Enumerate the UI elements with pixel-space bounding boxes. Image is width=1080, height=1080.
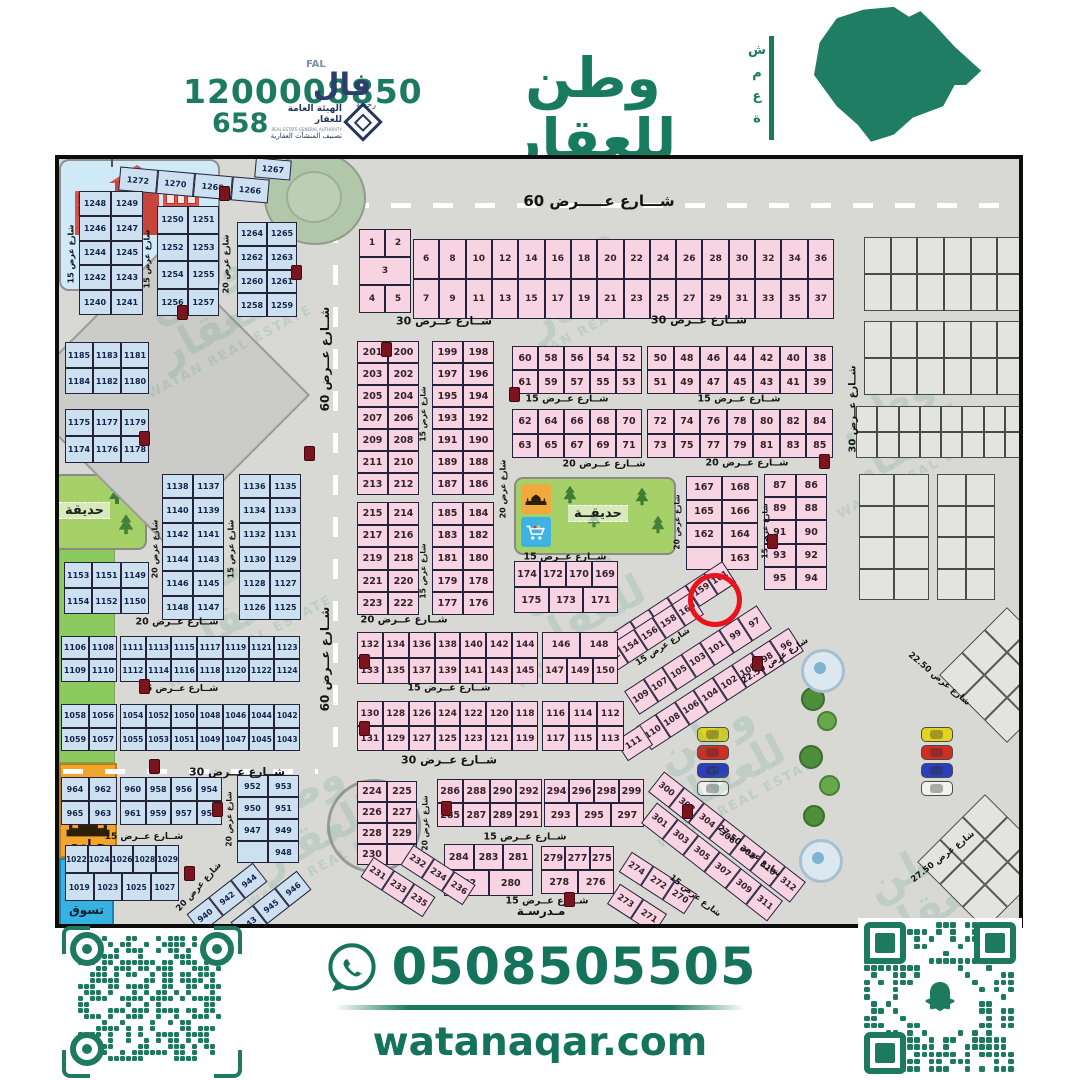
plot-cell-unnumbered [1005,406,1023,432]
plot-185: 185 [432,502,463,525]
plot-cell-unnumbered [962,432,983,458]
plot-299: 299 [619,779,644,803]
plot-cell-unnumbered [997,321,1023,358]
plot-1045: 1045 [249,728,275,752]
plot-178: 178 [463,570,494,593]
plots-layer: وطن للعقارWATAN REAL ESTATEوطن للعقارWAT… [59,159,1019,924]
plot-961: 961 [120,801,146,825]
plot-1119: 1119 [223,636,249,659]
plot-row: 960958956954 [120,777,222,801]
plot-1244: 1244 [79,241,111,266]
plot-block-empty-e4 [859,474,929,600]
plot-1183: 1183 [93,342,121,368]
plot-173: 173 [549,587,584,613]
plot-cell-unnumbered [966,506,995,538]
plot-row: 12601261 [237,270,297,294]
plot-139: 139 [435,658,461,684]
plot-1047: 1047 [223,728,249,752]
plot-row [859,474,929,506]
plot-68: 68 [590,409,616,434]
plot-row: 294296298299 [544,779,644,803]
plot-cell-unnumbered [920,406,941,432]
plot-cell-unnumbered [962,406,983,432]
plot-1266: 1266 [230,176,269,203]
plot-92: 92 [796,544,828,567]
plot-block-blk-118: 1301281261241221201181311291271251231211… [357,701,538,751]
plot-1252: 1252 [157,234,188,262]
plot-row: 117411761178 [65,436,149,463]
plot-row: 12581259 [237,293,297,317]
plot-75: 75 [674,434,701,459]
plot-1262: 1262 [237,246,267,270]
plot-1023: 1023 [94,873,123,901]
plot-203: 203 [357,363,388,385]
plot-1132: 1132 [239,523,270,547]
plot-row [864,237,1023,274]
plot-1138: 1138 [162,474,193,498]
plot-1113: 1113 [146,636,172,659]
plot-1111: 1111 [120,636,146,659]
plot-row: 177176 [432,592,494,615]
street-label: شــارع عــرض 60 [318,307,332,412]
plot-row: 223222 [357,592,419,615]
plot-40: 40 [780,346,807,370]
plot-1056: 1056 [89,704,117,728]
street-label: شارع عرض 15 [227,520,236,579]
plot-1267: 1267 [254,157,292,180]
plot-1058: 1058 [61,704,89,728]
plot-row: 175173171 [514,587,618,613]
plot-283: 283 [474,844,504,870]
plot-row: 191190 [432,429,494,451]
plot-block-blk-201: 2012002032022052042072062092082112102132… [357,341,419,495]
plot-197: 197 [432,363,463,385]
plot-1254: 1254 [157,261,188,289]
plot-1109: 1109 [61,659,89,682]
plot-row: 209208 [357,429,419,451]
plot-1150: 1150 [121,588,149,614]
plot-166: 166 [722,500,758,524]
plot-row: 12621263 [237,246,297,270]
plot-1126: 1126 [239,596,270,620]
utility-marker-icon [139,679,150,694]
plot-14: 14 [518,239,544,279]
plot-1055: 1055 [120,728,146,752]
plot-1241: 1241 [111,290,143,315]
plot-1052: 1052 [146,704,172,728]
plot-1127: 1127 [270,571,301,595]
plot-206: 206 [388,407,419,429]
plot-row: 11361135 [239,474,301,498]
brand-divider-bar [769,36,774,140]
plot-block-blk-947: 952953950951947949948 [237,775,299,863]
plot-1027: 1027 [151,873,180,901]
plot-row: 10591057 [61,728,117,752]
plot-196: 196 [463,363,494,385]
plot-cell-unnumbered [941,406,962,432]
plot-229: 229 [387,823,417,844]
plot-86: 86 [796,474,828,497]
utility-marker-icon [219,186,230,201]
plot-cell-unnumbered [997,274,1023,311]
plot-row [864,321,1023,358]
plot-row: 11401139 [162,498,224,522]
plot-63: 63 [512,434,538,459]
plot-77: 77 [700,434,727,459]
plot-90: 90 [796,520,828,543]
plot-125: 125 [435,726,461,751]
plot-row: 133135137139141143145 [357,658,538,684]
street-label: شــارع عــرض 15 [698,394,781,405]
plot-row [856,432,1023,458]
plot-row: 11461145 [162,571,224,595]
plot-949: 949 [268,819,299,841]
plot-189: 189 [432,451,463,473]
plot-row: 207206 [357,407,419,429]
plot-297: 297 [611,803,644,827]
plot-1110: 1110 [89,659,117,682]
plot-223: 223 [357,592,388,615]
plot-block-blk-6-37: 6810121416182022242628303234367911131517… [413,239,834,319]
plot-1115: 1115 [171,636,197,659]
plot-165: 165 [686,500,722,524]
street-label: شــارع عــرض 20 [136,617,219,628]
plot-1143: 1143 [193,547,224,571]
plot-965: 965 [61,801,89,825]
plot-76: 76 [700,409,727,434]
plot-1129: 1129 [270,547,301,571]
plot-13: 13 [492,279,518,319]
plot-row: 11421141 [162,523,224,547]
plot-row: 12461247 [79,216,143,241]
plot-block-blk-62: 62646668706365676971 [512,409,642,458]
plot-1134: 1134 [239,498,270,522]
plot-183: 183 [432,525,463,548]
utility-marker-icon [441,801,452,816]
plot-88: 88 [796,497,828,520]
plot-block-empty-ne2 [864,321,1023,395]
plot-1240: 1240 [79,290,111,315]
utility-marker-icon [184,866,195,881]
plot-286: 286 [437,779,463,803]
plot-1139: 1139 [193,498,224,522]
plot-142: 142 [486,632,512,658]
plot-1136: 1136 [239,474,270,498]
plot-38: 38 [806,346,833,370]
whatsapp-icon [324,940,380,996]
plot-row: 12481249 [79,191,143,216]
plot-127: 127 [409,726,435,751]
plot-167: 167 [686,476,722,500]
plot-cell-unnumbered [937,474,966,506]
plot-1176: 1176 [93,436,121,463]
street-label: شارع عرض 20 [499,460,508,519]
plot-1: 1 [359,229,385,257]
fal-logo-ar: فال [302,70,382,101]
street-label: شارع عرض 15 [143,230,152,289]
plot-row: 6365676971 [512,434,642,459]
street-label: شارع عرض 20 [151,520,160,579]
plot-57: 57 [564,370,590,394]
plot-row: 73757779818385 [647,434,833,459]
plot-52: 52 [616,346,642,370]
plot-1250: 1250 [157,206,188,234]
plot-959: 959 [146,801,172,825]
plot-281: 281 [503,844,533,870]
plot-1028: 1028 [133,845,156,873]
plot-row: 226227 [357,802,417,823]
utility-marker-icon [509,387,520,402]
plot-row: 11321131 [239,523,301,547]
plot-947: 947 [237,819,268,841]
plot-1130: 1130 [239,547,270,571]
plot-row: 12501251 [157,206,219,234]
plot-276: 276 [578,870,615,894]
plot-36: 36 [808,239,834,279]
plot-1117: 1117 [197,636,223,659]
plot-220: 220 [388,570,419,593]
plot-cell-unnumbered [917,274,944,311]
plot-cell-unnumbered [917,321,944,358]
street-label: شــارع عــرض 20 [563,459,646,470]
plot-179: 179 [432,570,463,593]
plot-row: 131129127125123121119 [357,726,538,751]
plot-1122: 1122 [249,659,275,682]
plot-221: 221 [357,570,388,593]
plot-cell-unnumbered [859,506,894,538]
plot-block-empty-e5 [937,474,995,600]
plot-41: 41 [780,370,807,394]
street-label: شــارع عــرض 30 [396,315,492,328]
plot-1025: 1025 [122,873,151,901]
plot-193: 193 [432,407,463,429]
plot-1142: 1142 [162,523,193,547]
utility-marker-icon [139,431,150,446]
plot-180: 180 [463,547,494,570]
plot-186: 186 [463,473,494,495]
plot-row: 187186 [432,473,494,495]
fal-license-logo: FAL فال رخصة [302,60,382,109]
street-label: شــارع عــرض 15 [140,684,219,694]
plot-20: 20 [597,239,623,279]
plot-123: 123 [460,726,486,751]
plot-4: 4 [359,285,385,313]
plot-cell-unnumbered [937,537,966,569]
utility-marker-icon [359,654,370,669]
plot-row [859,537,929,569]
plot-1272: 1272 [118,167,157,194]
plot-19: 19 [571,279,597,319]
plot-222: 222 [388,592,419,615]
plot-82: 82 [780,409,807,434]
plot-32: 32 [755,239,781,279]
plot-row: 12641265 [237,222,297,246]
plot-row: 215214 [357,502,419,525]
plot-block-blk-38: 5048464442403851494745434139 [647,346,833,394]
plot-row: 195194 [432,385,494,407]
plot-16: 16 [545,239,571,279]
street-label: شارع عرض 15 [419,386,428,441]
plot-map: مـدرسـة حديقة حديقــة جـامع تسوق [55,155,1023,928]
plot-cell-unnumbered [966,537,995,569]
street-label: شــارع عــرض 15 [524,552,607,563]
plot-row: 115411521150 [64,588,149,614]
plot-168: 168 [722,476,758,500]
plot-row: 681012141618202224262830323436 [413,239,834,279]
plot-cell-unnumbered [944,321,971,358]
plot-26: 26 [676,239,702,279]
plot-row: 116114112 [542,701,624,726]
plot-block-blk-285: 286288290292285287289291 [437,779,542,827]
plot-1057: 1057 [89,728,117,752]
plot-block-empty-diag1 [939,607,1023,743]
plot-row: 1111111311151117111911211123 [120,636,300,659]
plot-95: 95 [764,567,796,590]
utility-marker-icon [682,804,693,819]
plot-204: 204 [388,385,419,407]
highlighted-plot-160-circle [688,573,742,627]
plot-row: 1019102310251027 [65,873,179,901]
plot-row: 221220 [357,570,419,593]
plot-block-blk-1125: 1136113511341133113211311130112911281127… [239,474,301,620]
plot-row: 183182 [432,525,494,548]
plot-46: 46 [700,346,727,370]
plot-row: 1054105210501048104610441042 [120,704,300,728]
plot-row: 948 [237,841,299,863]
plot-69: 69 [590,434,616,459]
plot-row: 11281127 [239,571,301,595]
plot-960: 960 [120,777,146,801]
plot-115: 115 [569,726,596,751]
plot-227: 227 [387,802,417,823]
street-label: شــارع عــرض 15 [408,683,491,694]
plot-1174: 1174 [65,436,93,463]
rega-logo-text: الهيئة العامة للعقار REAL ESTATE GENERAL… [258,104,342,140]
plot-cell-unnumbered [997,237,1023,274]
street-label: شــارع عــرض 30 [189,766,285,779]
plot-65: 65 [538,434,564,459]
plot-row: 284283281 [444,844,533,870]
plot-48: 48 [674,346,701,370]
plot-row: 1267 [254,157,292,180]
plot-cell-unnumbered [917,358,944,395]
plot-row: 197196 [432,363,494,385]
plot-1051: 1051 [171,728,197,752]
plot-cell-unnumbered [859,569,894,601]
plot-21: 21 [597,279,623,319]
plot-row [864,358,1023,395]
plot-23: 23 [624,279,650,319]
utility-marker-icon [381,342,392,357]
plot-1264: 1264 [237,222,267,246]
street-label: شــارع عــرض 30 [401,754,497,767]
plot-row: 228229 [357,823,417,844]
plot-1255: 1255 [188,261,219,289]
plot-1019: 1019 [65,873,94,901]
plot-292: 292 [516,779,542,803]
plot-cell-unnumbered [937,506,966,538]
plot-cell-unnumbered [891,237,918,274]
plot-202: 202 [388,363,419,385]
plot-row: 6264666870 [512,409,642,434]
qr-code-left [66,930,238,1074]
plot-block-blk-1149: 115311511149115411521150 [64,562,149,614]
plot-74: 74 [674,409,701,434]
plot-958: 958 [146,777,172,801]
plot-1243: 1243 [111,265,143,290]
plot-298: 298 [594,779,619,803]
plot-175: 175 [514,587,549,613]
plot-1251: 1251 [188,206,219,234]
plot-44: 44 [727,346,754,370]
plot-951: 951 [268,797,299,819]
plot-17: 17 [545,279,571,319]
plot-block-blk-169: 174172170169175173171 [514,561,618,613]
plot-row: 147149150 [542,658,618,684]
plot-1141: 1141 [193,523,224,547]
plot-49: 49 [674,370,701,394]
plot-row: 8786 [764,474,827,497]
plot-128: 128 [383,701,409,726]
plot-block-blk-293: 294296298299293295297 [544,779,644,827]
plot-207: 207 [357,407,388,429]
snapchat-ghost-icon [912,970,968,1026]
plot-112: 112 [597,701,624,726]
plot-226: 226 [357,802,387,823]
plot-row: 6058565452 [512,346,642,370]
plot-64: 64 [538,409,564,434]
plot-row: 286288290292 [437,779,542,803]
plot-row: 224225 [357,781,417,802]
plot-10: 10 [466,239,492,279]
plot-137: 137 [409,658,435,684]
whatsapp-number: 0508505505 [392,938,757,997]
plot-1050: 1050 [171,704,197,728]
footer-divider [335,1005,745,1010]
plot-row: 11341133 [239,498,301,522]
utility-marker-icon [767,534,778,549]
plot-134: 134 [383,632,409,658]
plot-3: 3 [359,257,411,285]
plot-block-blk-162: 167168165166162164163 [686,476,758,570]
plot-row: 965963 [61,801,117,825]
plot-block-empty-ne1 [864,237,1023,311]
plot-22: 22 [624,239,650,279]
plot-1043: 1043 [274,728,300,752]
plot-54: 54 [590,346,616,370]
plot-209: 209 [357,429,388,451]
plot-cell-unnumbered [864,237,891,274]
plot-row: 1055105310511049104710451043 [120,728,300,752]
plot-28: 28 [702,239,728,279]
plot-cell-unnumbered [894,569,929,601]
street-label: شــارع عــرض 15 [105,832,184,842]
plot-cell-unnumbered [864,358,891,395]
saudi-arabia-map-icon [795,4,985,146]
plot-1121: 1121 [249,636,275,659]
plot-1152: 1152 [92,588,120,614]
plot-block-blk-112: 116114112117115113 [542,701,624,751]
plot-190: 190 [463,429,494,451]
plot-84: 84 [806,409,833,434]
plot-15: 15 [518,279,544,319]
plot-224: 224 [357,781,387,802]
plot-182: 182 [463,525,494,548]
plot-1042: 1042 [274,704,300,728]
plot-row: 203202 [357,363,419,385]
plot-34: 34 [781,239,807,279]
plot-81: 81 [753,434,780,459]
